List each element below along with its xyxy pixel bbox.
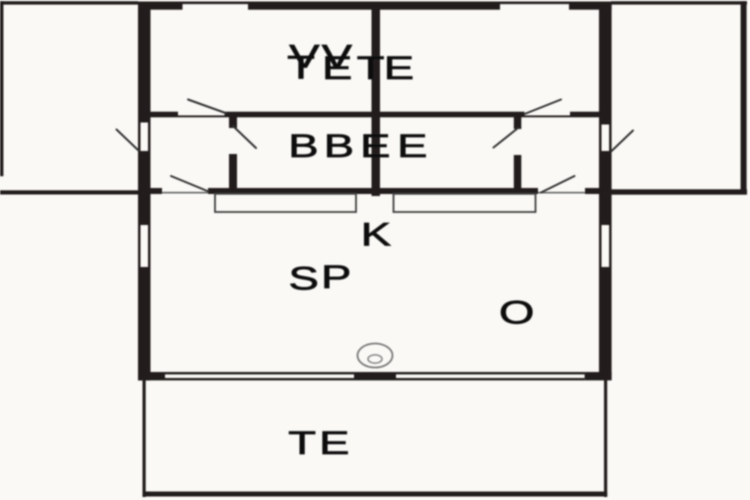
svg-text:E: E — [384, 51, 414, 87]
svg-text:O: O — [499, 295, 534, 331]
svg-text:S: S — [289, 261, 319, 297]
svg-text:E: E — [397, 129, 427, 165]
svg-text:T: T — [357, 51, 385, 87]
svg-text:E: E — [360, 129, 390, 165]
svg-text:B: B — [288, 129, 318, 165]
svg-text:E: E — [319, 426, 349, 462]
svg-text:T: T — [287, 50, 315, 86]
svg-text:E: E — [322, 51, 352, 87]
svg-text:P: P — [321, 260, 351, 296]
svg-text:B: B — [324, 129, 354, 165]
svg-text:T: T — [288, 426, 316, 462]
svg-text:K: K — [361, 217, 391, 253]
